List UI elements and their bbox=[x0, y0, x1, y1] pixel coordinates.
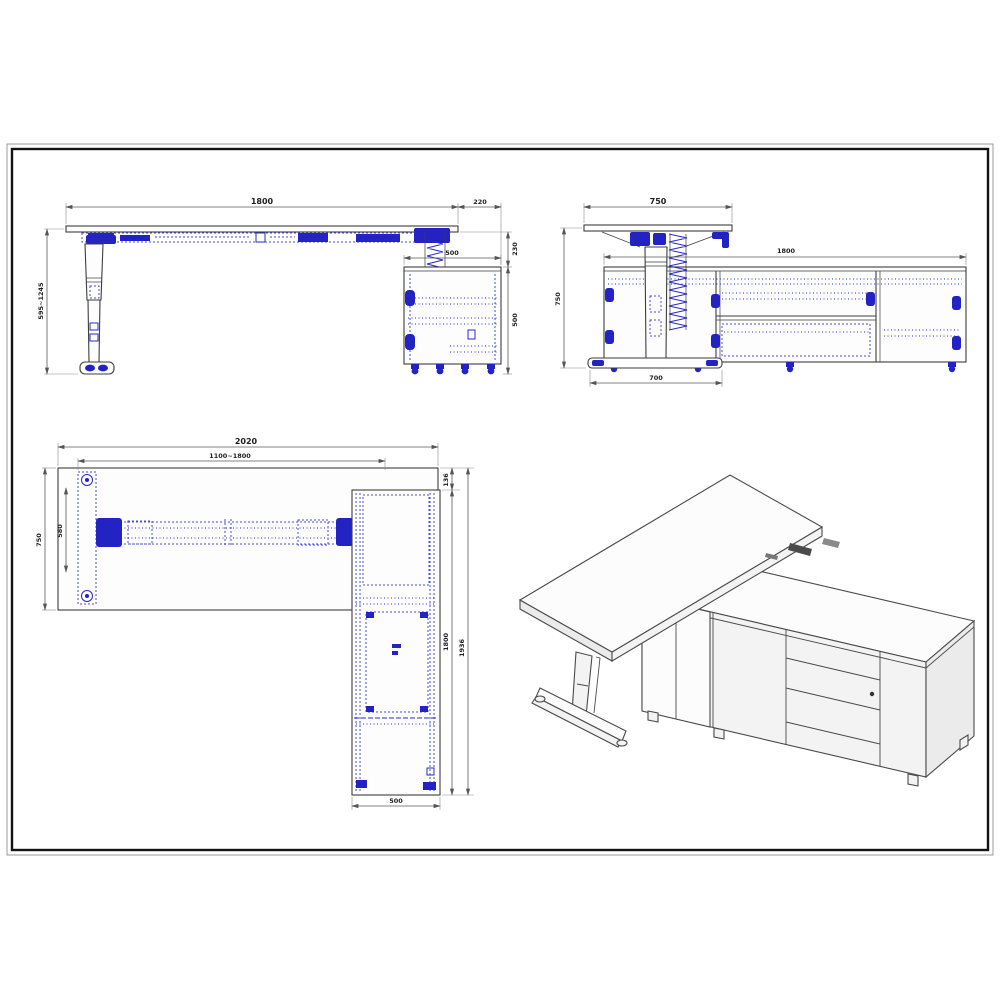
dim-edge-offset: 136 bbox=[442, 473, 450, 487]
desktop-front bbox=[66, 226, 458, 232]
cabinet-front bbox=[404, 267, 501, 374]
dim-frame-range: 1100~1800 bbox=[209, 452, 251, 460]
desktop-side bbox=[584, 225, 732, 231]
dim-overhang: 220 bbox=[473, 198, 487, 206]
dim-overall-length: 2020 bbox=[235, 437, 258, 446]
hinge-icon bbox=[405, 334, 415, 350]
dim-cabinet-length-side: 1800 bbox=[777, 247, 796, 255]
dim-overall-height: 750 bbox=[554, 292, 562, 306]
drawing-sheet: 1800 220 595~1245 500 230 500 bbox=[0, 0, 1000, 1000]
technical-drawing-canvas: 1800 220 595~1245 500 230 500 bbox=[0, 0, 1000, 1000]
dim-cabinet-width-front: 500 bbox=[445, 249, 459, 257]
hinge-icon bbox=[605, 288, 614, 302]
leg-foot-side bbox=[588, 358, 722, 368]
hinge-icon bbox=[605, 330, 614, 344]
dim-cabinet-length-plan: 1800 bbox=[442, 632, 450, 651]
dim-overall-depth: 1936 bbox=[458, 638, 466, 657]
dim-top-gap: 230 bbox=[511, 242, 519, 256]
dim-desk-depth-plan: 750 bbox=[35, 533, 43, 547]
hinge-icon bbox=[405, 290, 415, 306]
dim-foot-length: 700 bbox=[649, 374, 663, 382]
dim-cabinet-width-plan: 500 bbox=[389, 797, 403, 805]
dim-foot-span: 580 bbox=[56, 524, 64, 538]
dim-height-range: 595~1245 bbox=[37, 282, 45, 320]
cabinet-plan bbox=[352, 490, 440, 795]
dim-desk-depth-side: 750 bbox=[650, 197, 667, 206]
lock-icon bbox=[870, 692, 874, 696]
dim-desktop-length: 1800 bbox=[251, 197, 274, 206]
dim-cabinet-height: 500 bbox=[511, 313, 519, 327]
